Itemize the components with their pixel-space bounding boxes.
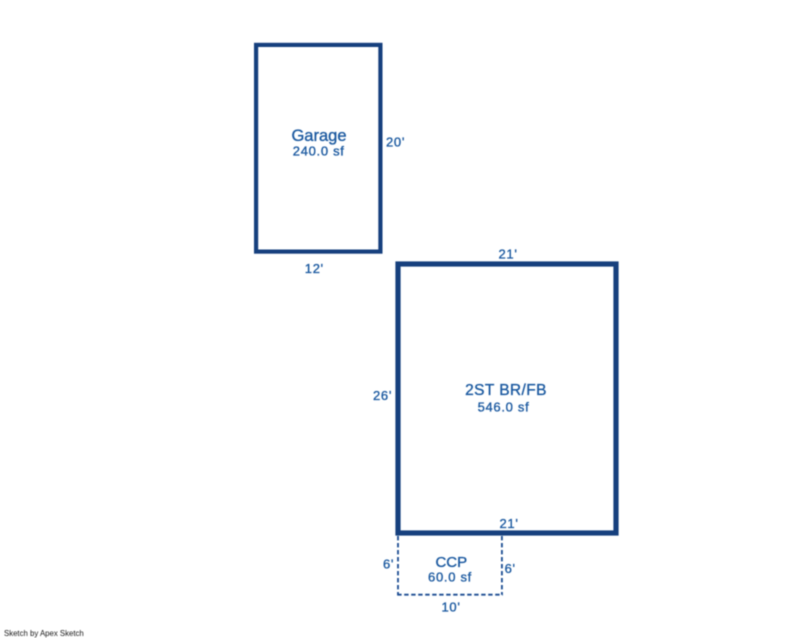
svg-text:20': 20' xyxy=(386,134,405,149)
svg-text:Garage: Garage xyxy=(291,127,346,145)
svg-text:26': 26' xyxy=(373,388,392,403)
svg-text:21': 21' xyxy=(499,516,518,531)
svg-text:60.0 sf: 60.0 sf xyxy=(428,569,472,584)
svg-text:12': 12' xyxy=(305,261,324,276)
svg-text:6': 6' xyxy=(505,561,516,576)
svg-text:21': 21' xyxy=(498,246,517,261)
svg-text:2ST BR/FB: 2ST BR/FB xyxy=(465,382,547,399)
svg-text:6': 6' xyxy=(383,557,394,572)
svg-text:10': 10' xyxy=(441,600,460,615)
svg-text:240.0 sf: 240.0 sf xyxy=(293,144,345,159)
svg-text:546.0 sf: 546.0 sf xyxy=(478,399,530,414)
svg-text:Sketch by Apex Sketch: Sketch by Apex Sketch xyxy=(4,629,84,638)
